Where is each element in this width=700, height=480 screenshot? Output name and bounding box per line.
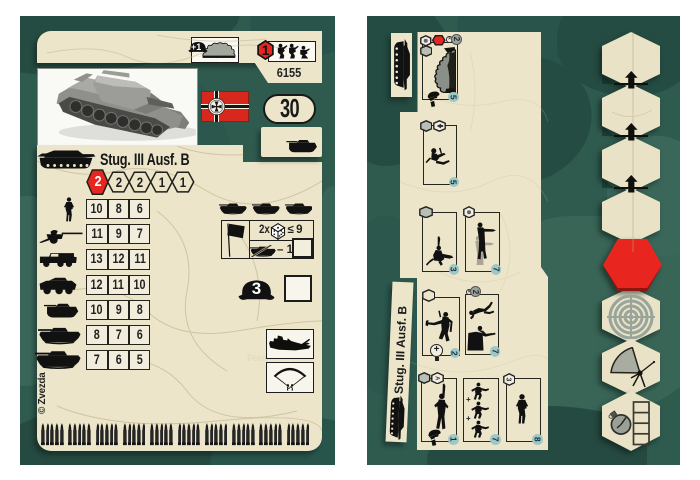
svg-text:3: 3 [504, 377, 511, 381]
svg-text:1: 1 [262, 42, 270, 58]
svg-text:A: A [433, 376, 439, 381]
